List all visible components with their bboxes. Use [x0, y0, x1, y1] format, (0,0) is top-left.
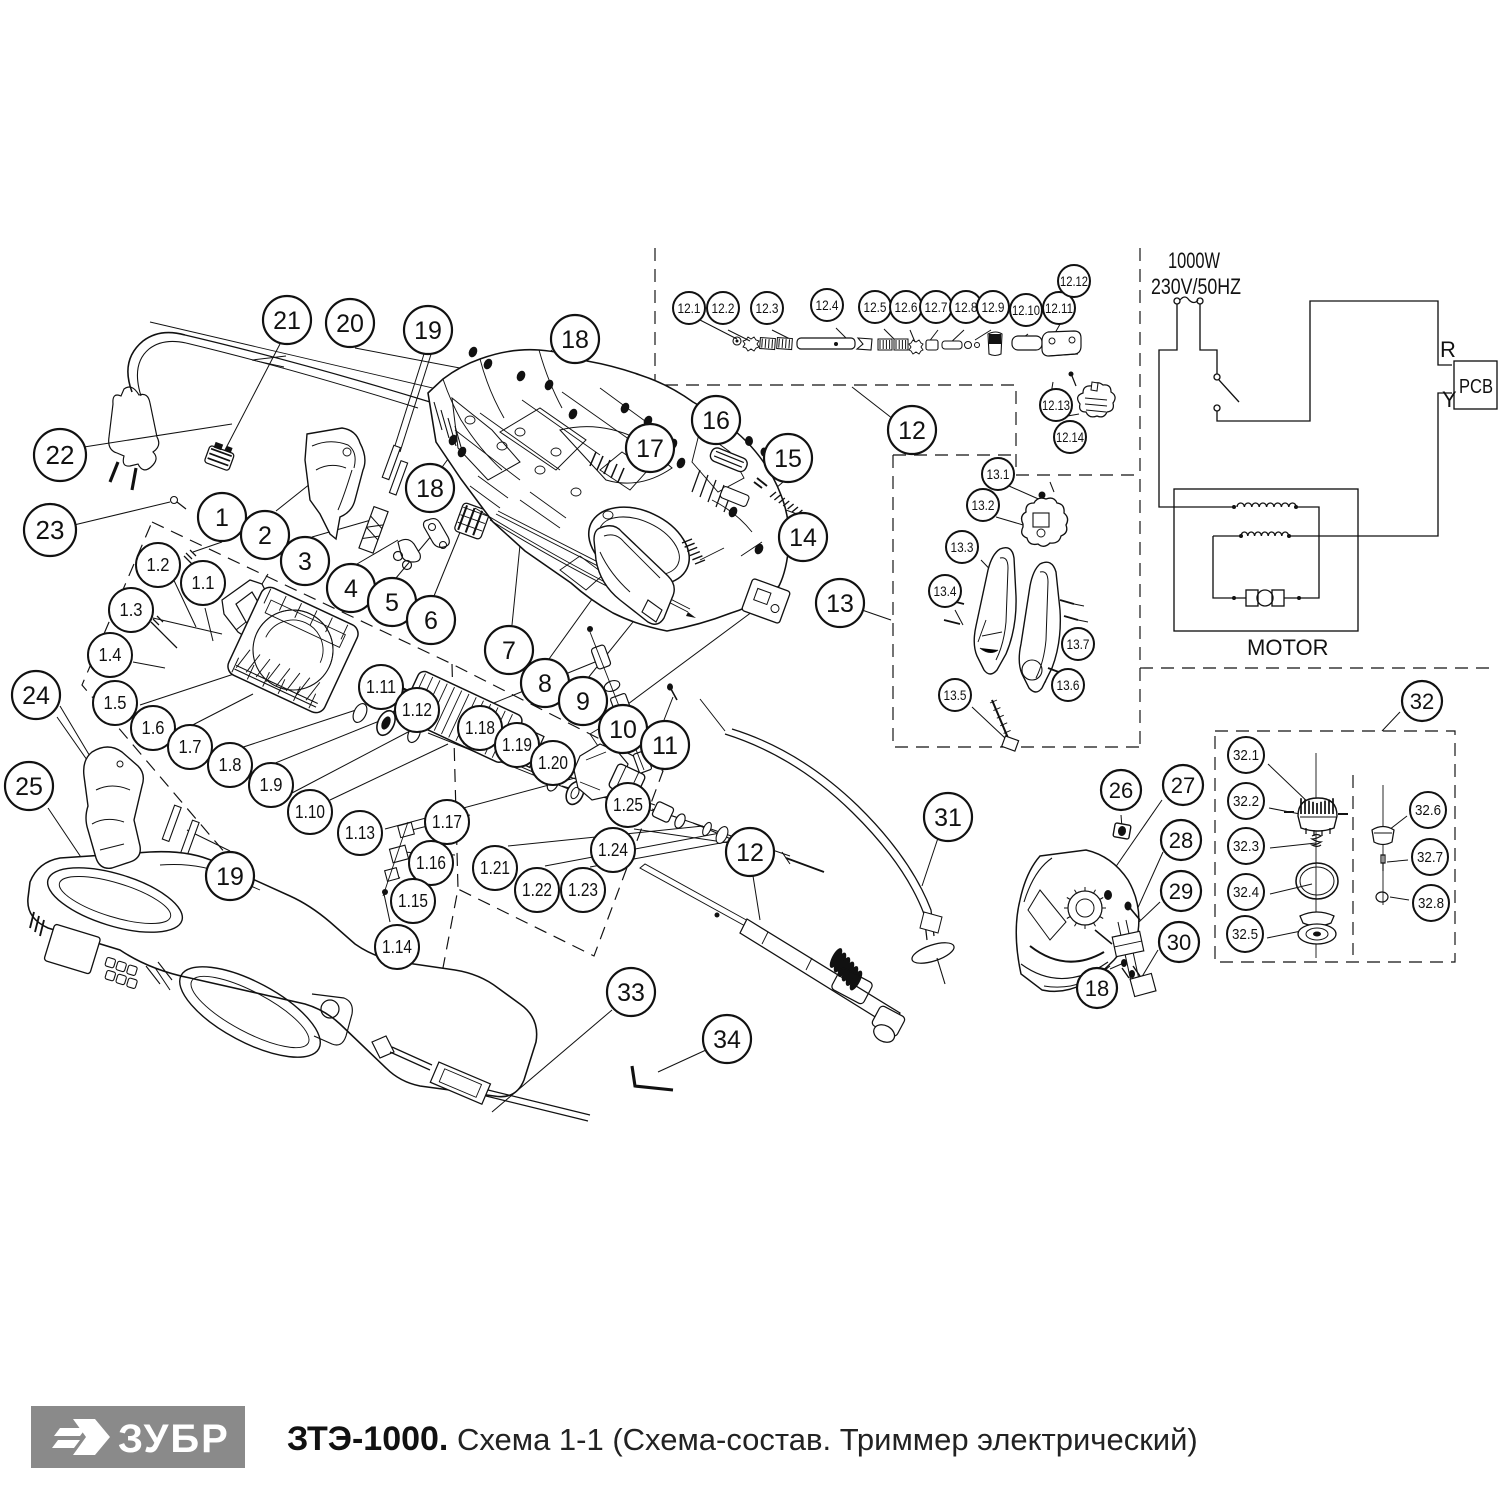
svg-text:12.1: 12.1	[678, 301, 701, 316]
svg-text:17: 17	[636, 435, 664, 463]
svg-text:1.25: 1.25	[613, 795, 643, 815]
svg-text:1.9: 1.9	[260, 775, 283, 795]
svg-text:1.18: 1.18	[465, 718, 495, 738]
svg-text:1000W: 1000W	[1168, 248, 1220, 273]
svg-text:R: R	[1440, 337, 1456, 362]
svg-text:12.5: 12.5	[864, 300, 887, 315]
svg-text:12.7: 12.7	[925, 300, 948, 315]
svg-text:1.14: 1.14	[382, 937, 412, 957]
svg-text:29: 29	[1169, 879, 1193, 904]
svg-text:1.1: 1.1	[192, 573, 215, 593]
svg-text:32.8: 32.8	[1418, 895, 1444, 912]
svg-text:19: 19	[216, 863, 244, 891]
svg-text:23: 23	[36, 515, 65, 545]
svg-text:1.2: 1.2	[147, 555, 170, 575]
svg-text:1.12: 1.12	[402, 700, 432, 720]
svg-text:1.3: 1.3	[120, 600, 143, 620]
svg-text:18: 18	[561, 326, 589, 354]
svg-text:1.22: 1.22	[522, 880, 552, 900]
svg-text:1.8: 1.8	[219, 755, 242, 775]
svg-text:1.7: 1.7	[179, 737, 202, 757]
svg-text:1.13: 1.13	[345, 823, 375, 843]
svg-text:1.4: 1.4	[99, 645, 122, 665]
svg-text:31: 31	[934, 804, 962, 832]
svg-text:1.21: 1.21	[480, 858, 510, 878]
svg-text:8: 8	[538, 670, 552, 698]
svg-text:Y: Y	[1442, 387, 1457, 412]
svg-text:13.1: 13.1	[987, 467, 1010, 482]
svg-text:230V/50HZ: 230V/50HZ	[1151, 274, 1241, 299]
svg-text:10: 10	[609, 716, 637, 744]
svg-text:1.10: 1.10	[295, 802, 325, 822]
svg-text:7: 7	[502, 637, 516, 665]
svg-text:19: 19	[414, 317, 442, 345]
svg-text:32.7: 32.7	[1417, 849, 1443, 866]
svg-text:30: 30	[1167, 930, 1191, 955]
svg-text:MOTOR: MOTOR	[1247, 635, 1328, 660]
svg-text:13: 13	[826, 590, 854, 618]
svg-text:1.5: 1.5	[104, 693, 127, 713]
svg-text:12.9: 12.9	[982, 300, 1005, 315]
svg-text:12.8: 12.8	[955, 300, 978, 315]
svg-text:22: 22	[46, 440, 75, 470]
svg-text:12.12: 12.12	[1060, 274, 1088, 289]
svg-text:1.17: 1.17	[432, 812, 462, 832]
svg-text:18: 18	[416, 475, 444, 503]
svg-text:1.19: 1.19	[502, 735, 532, 755]
svg-text:PCB: PCB	[1459, 376, 1493, 398]
svg-text:1.6: 1.6	[142, 718, 165, 738]
svg-text:12.11: 12.11	[1045, 301, 1073, 316]
svg-text:12.3: 12.3	[756, 301, 779, 316]
svg-text:27: 27	[1171, 773, 1195, 798]
svg-text:1.11: 1.11	[366, 677, 396, 697]
svg-text:1.23: 1.23	[568, 880, 598, 900]
svg-text:14: 14	[789, 524, 817, 552]
svg-text:12.10: 12.10	[1012, 303, 1040, 318]
svg-text:1.20: 1.20	[538, 753, 568, 773]
svg-text:16: 16	[702, 407, 730, 435]
svg-text:12.14: 12.14	[1056, 430, 1084, 445]
svg-text:ЗТЭ-1000. Схема 1-1 (Схема-сос: ЗТЭ-1000. Схема 1-1 (Схема-состав. Тримм…	[287, 1420, 1198, 1458]
svg-text:13.3: 13.3	[951, 540, 974, 555]
svg-text:32.4: 32.4	[1233, 884, 1259, 901]
svg-text:18: 18	[1085, 976, 1109, 1001]
svg-text:2: 2	[258, 522, 272, 550]
svg-text:32.3: 32.3	[1233, 838, 1259, 855]
svg-text:13.6: 13.6	[1057, 678, 1080, 693]
svg-text:1: 1	[215, 504, 229, 532]
svg-text:32.6: 32.6	[1415, 802, 1441, 819]
svg-text:21: 21	[273, 307, 301, 335]
svg-text:1.15: 1.15	[398, 891, 428, 911]
svg-text:12.6: 12.6	[895, 300, 918, 315]
svg-text:13.7: 13.7	[1067, 637, 1090, 652]
svg-text:24: 24	[22, 682, 50, 710]
svg-text:34: 34	[713, 1026, 741, 1054]
svg-text:1.16: 1.16	[416, 853, 446, 873]
svg-text:26: 26	[1109, 778, 1133, 803]
svg-text:12.4: 12.4	[816, 298, 839, 313]
svg-text:1.24: 1.24	[598, 840, 628, 860]
svg-text:ЗУБР: ЗУБР	[118, 1417, 230, 1461]
svg-text:5: 5	[385, 589, 399, 617]
svg-text:11: 11	[652, 732, 678, 760]
svg-text:32.2: 32.2	[1233, 793, 1259, 810]
svg-text:28: 28	[1169, 828, 1193, 853]
svg-text:32: 32	[1410, 689, 1434, 714]
svg-text:3: 3	[298, 548, 312, 576]
svg-text:4: 4	[344, 575, 358, 603]
svg-text:25: 25	[15, 773, 43, 801]
svg-text:13.5: 13.5	[944, 688, 967, 703]
svg-text:12.13: 12.13	[1042, 398, 1070, 413]
svg-text:12: 12	[898, 417, 926, 445]
svg-text:20: 20	[336, 310, 364, 338]
svg-text:32.5: 32.5	[1232, 926, 1258, 943]
svg-text:9: 9	[576, 688, 590, 716]
svg-text:13.2: 13.2	[972, 498, 995, 513]
svg-text:33: 33	[617, 979, 645, 1007]
svg-text:15: 15	[774, 445, 802, 473]
svg-text:13.4: 13.4	[934, 584, 957, 599]
svg-text:12.2: 12.2	[712, 301, 735, 316]
svg-text:6: 6	[424, 607, 438, 635]
svg-text:12: 12	[736, 839, 764, 867]
svg-text:32.1: 32.1	[1233, 747, 1259, 764]
